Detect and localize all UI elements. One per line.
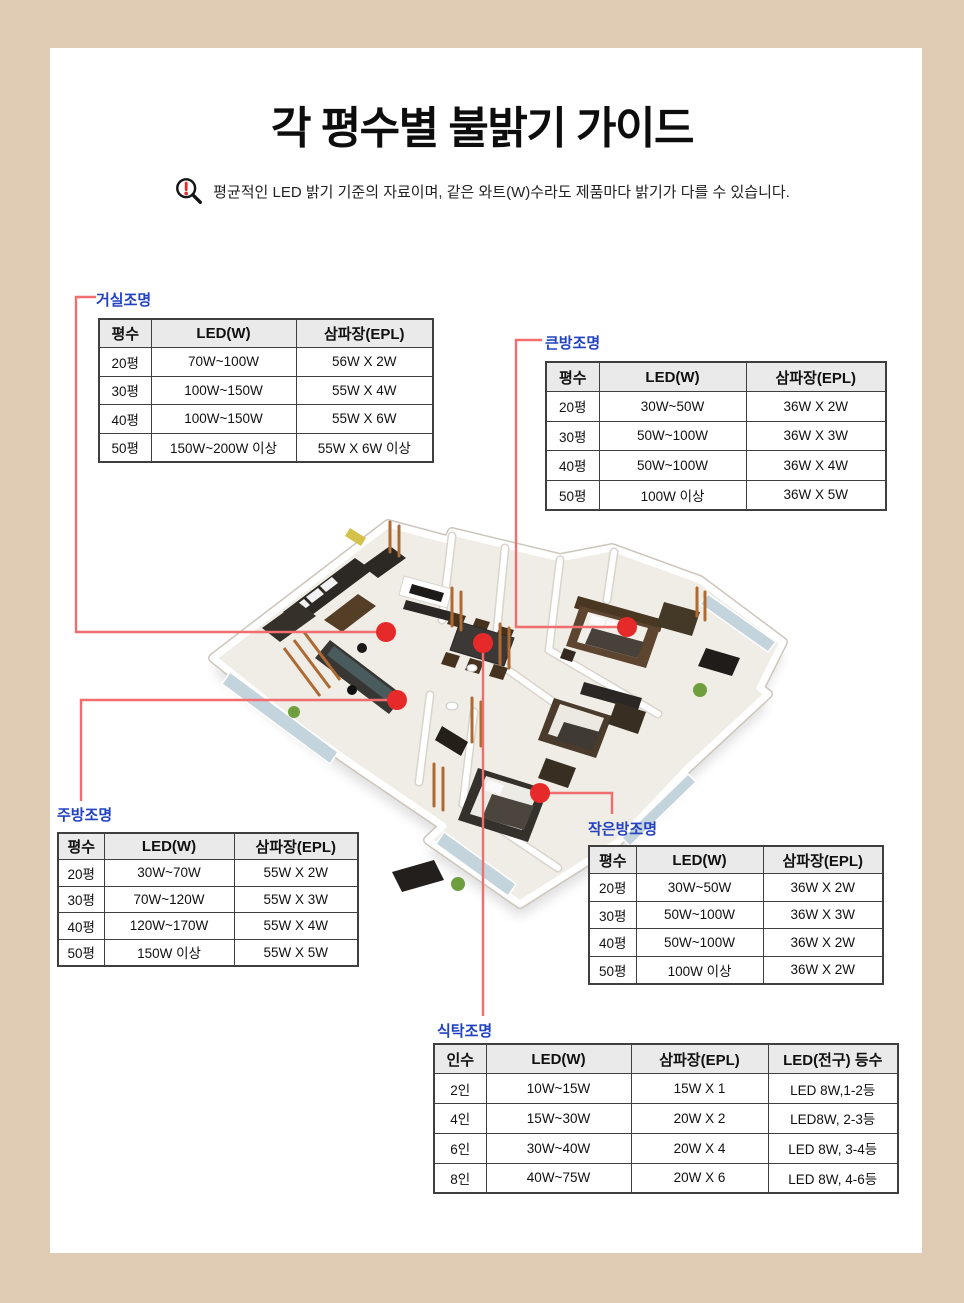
column-header: 삼파장(EPL) [296,319,433,348]
living-room-table: 평수LED(W)삼파장(EPL)20평70W~100W56W X 2W30평10… [98,318,434,463]
table-row: 50평100W 이상36W X 5W [546,480,886,510]
disclaimer-text: 평균적인 LED 밝기 기준의 자료이며, 같은 와트(W)수라도 제품마다 밝… [213,181,790,202]
table-cell: 55W X 4W [296,376,433,405]
table-row: 50평150W~200W 이상55W X 6W 이상 [99,433,433,462]
table-cell: 36W X 4W [746,451,886,481]
table-row: 20평30W~50W36W X 2W [589,874,883,902]
table-cell: 55W X 6W 이상 [296,433,433,462]
table-cell: 150W 이상 [104,939,234,966]
table-cell: 30평 [589,901,636,929]
table-row: 50평100W 이상36W X 2W [589,956,883,984]
table-row: 20평30W~50W36W X 2W [546,392,886,422]
table-cell: 120W~170W [104,913,234,940]
table-cell: 50평 [99,433,151,462]
table-label-kitchen: 주방조명 [57,804,112,825]
table-cell: 15W~30W [486,1104,631,1134]
table-cell: 20평 [546,392,599,422]
table-cell: 20평 [58,860,104,887]
table-cell: 30W~40W [486,1133,631,1163]
big-room-table: 평수LED(W)삼파장(EPL)20평30W~50W36W X 2W30평50W… [545,361,887,511]
table-cell: LED8W, 2-3등 [768,1104,898,1134]
table-cell: 20평 [589,874,636,902]
table-row: 40평50W~100W36W X 2W [589,929,883,957]
table-cell: 55W X 3W [234,886,358,913]
table-cell: 36W X 3W [746,421,886,451]
table-cell: 100W~150W [151,376,296,405]
table-row: 30평50W~100W36W X 3W [589,901,883,929]
table-row: 30평100W~150W55W X 4W [99,376,433,405]
table-row: 6인30W~40W20W X 4LED 8W, 3-4등 [434,1133,898,1163]
table-row: 40평50W~100W36W X 4W [546,451,886,481]
table-cell: 40W~75W [486,1163,631,1193]
table-cell: 100W~150W [151,405,296,434]
table-cell: 6인 [434,1133,486,1163]
table-cell: 50W~100W [599,451,746,481]
table-cell: 50W~100W [599,421,746,451]
disclaimer: 평균적인 LED 밝기 기준의 자료이며, 같은 와트(W)수라도 제품마다 밝… [0,176,964,206]
table-cell: 2인 [434,1074,486,1104]
table-cell: 100W 이상 [636,956,763,984]
table-cell: 55W X 4W [234,913,358,940]
column-header: 인수 [434,1044,486,1074]
table-cell: 150W~200W 이상 [151,433,296,462]
table-cell: 40평 [99,405,151,434]
table-cell: 30W~70W [104,860,234,887]
table-cell: 55W X 2W [234,860,358,887]
small-room-table: 평수LED(W)삼파장(EPL)20평30W~50W36W X 2W30평50W… [588,845,884,985]
table-row: 20평30W~70W55W X 2W [58,860,358,887]
column-header: 평수 [546,362,599,392]
table-row: 30평50W~100W36W X 3W [546,421,886,451]
page-title: 각 평수별 불밝기 가이드 [0,92,964,156]
table-label-living: 거실조명 [96,289,151,310]
table-cell: 30W~50W [599,392,746,422]
table-cell: 100W 이상 [599,480,746,510]
table-cell: 70W~120W [104,886,234,913]
kitchen-table: 평수LED(W)삼파장(EPL)20평30W~70W55W X 2W30평70W… [57,832,359,967]
table-row: 40평120W~170W55W X 4W [58,913,358,940]
column-header: LED(W) [151,319,296,348]
table-cell: 20W X 2 [631,1104,768,1134]
table-cell: 36W X 2W [746,392,886,422]
table-cell: 36W X 3W [763,901,883,929]
table-cell: 30평 [58,886,104,913]
table-cell: LED 8W, 3-4등 [768,1133,898,1163]
table-cell: 50W~100W [636,901,763,929]
table-cell: 36W X 5W [746,480,886,510]
column-header: 삼파장(EPL) [746,362,886,392]
table-cell: 50평 [546,480,599,510]
table-cell: 30평 [99,376,151,405]
column-header: LED(W) [599,362,746,392]
table-cell: 40평 [589,929,636,957]
table-cell: 70W~100W [151,348,296,377]
column-header: LED(전구) 등수 [768,1044,898,1074]
column-header: 삼파장(EPL) [234,833,358,860]
column-header: 평수 [99,319,151,348]
table-cell: 15W X 1 [631,1074,768,1104]
table-label-dining: 식탁조명 [437,1020,492,1041]
table-row: 40평100W~150W55W X 6W [99,405,433,434]
table-row: 30평70W~120W55W X 3W [58,886,358,913]
column-header: LED(W) [104,833,234,860]
table-cell: 56W X 2W [296,348,433,377]
table-cell: 50평 [58,939,104,966]
table-label-smallroom: 작은방조명 [588,818,657,839]
table-cell: 50W~100W [636,929,763,957]
table-cell: 55W X 6W [296,405,433,434]
table-cell: 20W X 4 [631,1133,768,1163]
table-row: 2인10W~15W15W X 1LED 8W,1-2등 [434,1074,898,1104]
column-header: 평수 [589,846,636,874]
column-header: 삼파장(EPL) [631,1044,768,1074]
table-cell: 40평 [546,451,599,481]
column-header: 삼파장(EPL) [763,846,883,874]
table-row: 20평70W~100W56W X 2W [99,348,433,377]
magnifier-alert-icon [174,176,204,206]
column-header: 평수 [58,833,104,860]
table-row: 8인40W~75W20W X 6LED 8W, 4-6등 [434,1163,898,1193]
table-cell: 8인 [434,1163,486,1193]
table-cell: 36W X 2W [763,874,883,902]
column-header: LED(W) [486,1044,631,1074]
table-cell: LED 8W,1-2등 [768,1074,898,1104]
table-cell: 10W~15W [486,1074,631,1104]
table-cell: 40평 [58,913,104,940]
table-row: 50평150W 이상55W X 5W [58,939,358,966]
table-row: 4인15W~30W20W X 2LED8W, 2-3등 [434,1104,898,1134]
infographic-canvas: 각 평수별 불밝기 가이드 평균적인 LED 밝기 기준의 자료이며, 같은 와… [0,0,964,1303]
table-cell: 30평 [546,421,599,451]
table-cell: 36W X 2W [763,929,883,957]
table-cell: 30W~50W [636,874,763,902]
table-cell: 4인 [434,1104,486,1134]
table-label-bigroom: 큰방조명 [545,332,600,353]
table-cell: 55W X 5W [234,939,358,966]
table-cell: 50평 [589,956,636,984]
dining-table-table: 인수LED(W)삼파장(EPL)LED(전구) 등수2인10W~15W15W X… [433,1043,899,1194]
column-header: LED(W) [636,846,763,874]
table-cell: 20평 [99,348,151,377]
table-cell: LED 8W, 4-6등 [768,1163,898,1193]
table-cell: 36W X 2W [763,956,883,984]
table-cell: 20W X 6 [631,1163,768,1193]
